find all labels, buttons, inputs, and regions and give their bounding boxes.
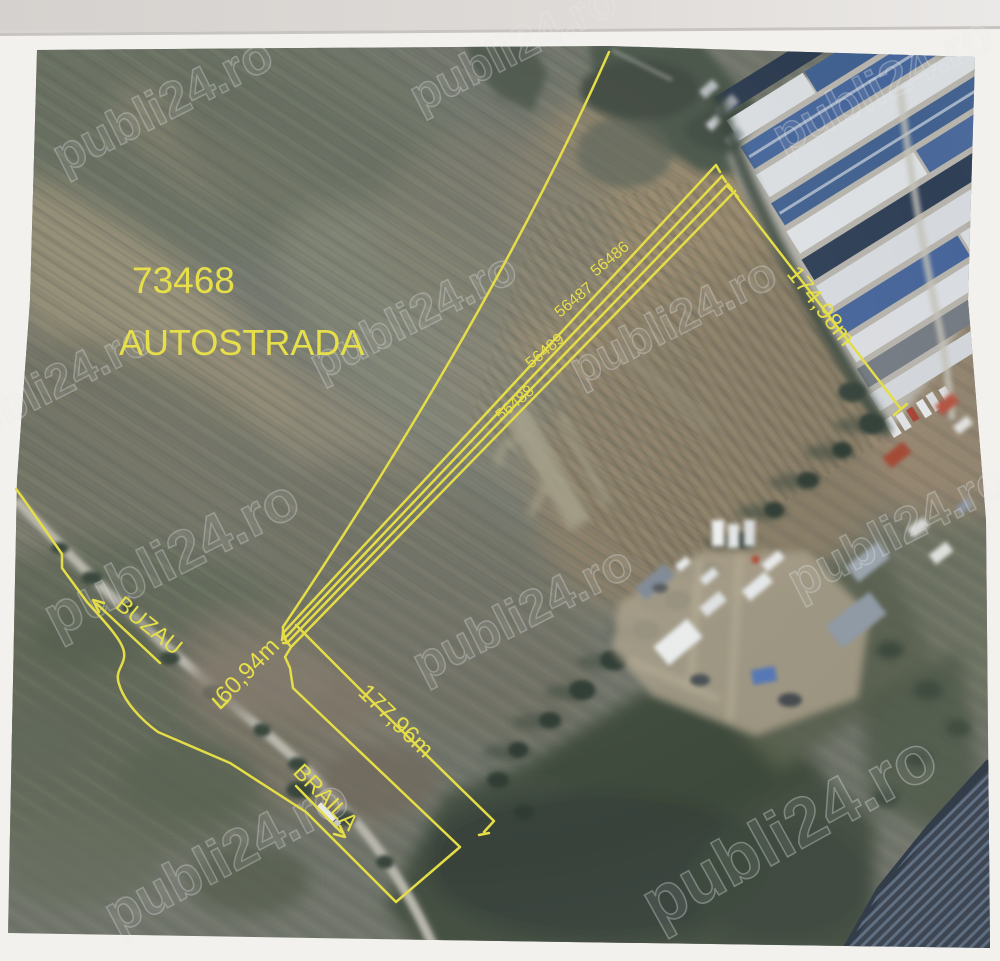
svg-text:73468: 73468 <box>132 260 235 301</box>
svg-text:AUTOSTRADA: AUTOSTRADA <box>119 322 364 363</box>
